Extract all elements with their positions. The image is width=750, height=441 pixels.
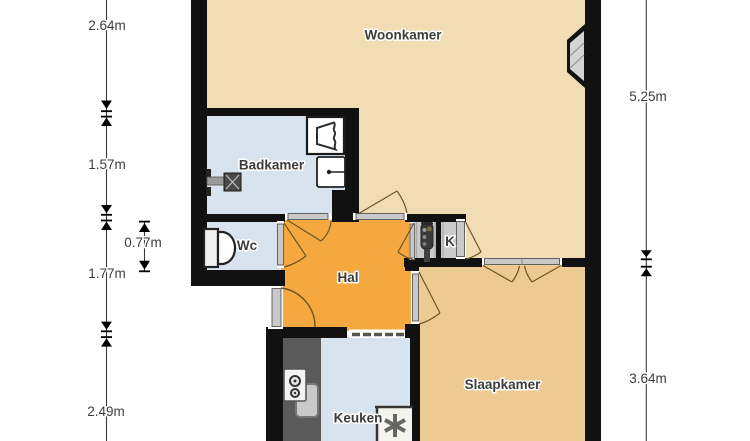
svg-text:Badkamer: Badkamer xyxy=(239,158,305,173)
svg-text:K: K xyxy=(445,234,455,249)
svg-text:2.49m: 2.49m xyxy=(87,404,125,419)
svg-text:Woonkamer: Woonkamer xyxy=(364,28,442,43)
svg-text:5.25m: 5.25m xyxy=(629,89,667,104)
svg-text:3.64m: 3.64m xyxy=(629,371,667,386)
svg-text:0.77m: 0.77m xyxy=(124,235,162,250)
svg-text:Wc: Wc xyxy=(237,238,258,253)
svg-text:Slaapkamer: Slaapkamer xyxy=(465,377,542,392)
svg-text:2.64m: 2.64m xyxy=(88,18,126,33)
svg-text:1.57m: 1.57m xyxy=(88,157,126,172)
svg-text:Hal: Hal xyxy=(337,270,358,285)
svg-text:Keuken: Keuken xyxy=(334,411,383,426)
svg-text:1.77m: 1.77m xyxy=(88,266,126,281)
